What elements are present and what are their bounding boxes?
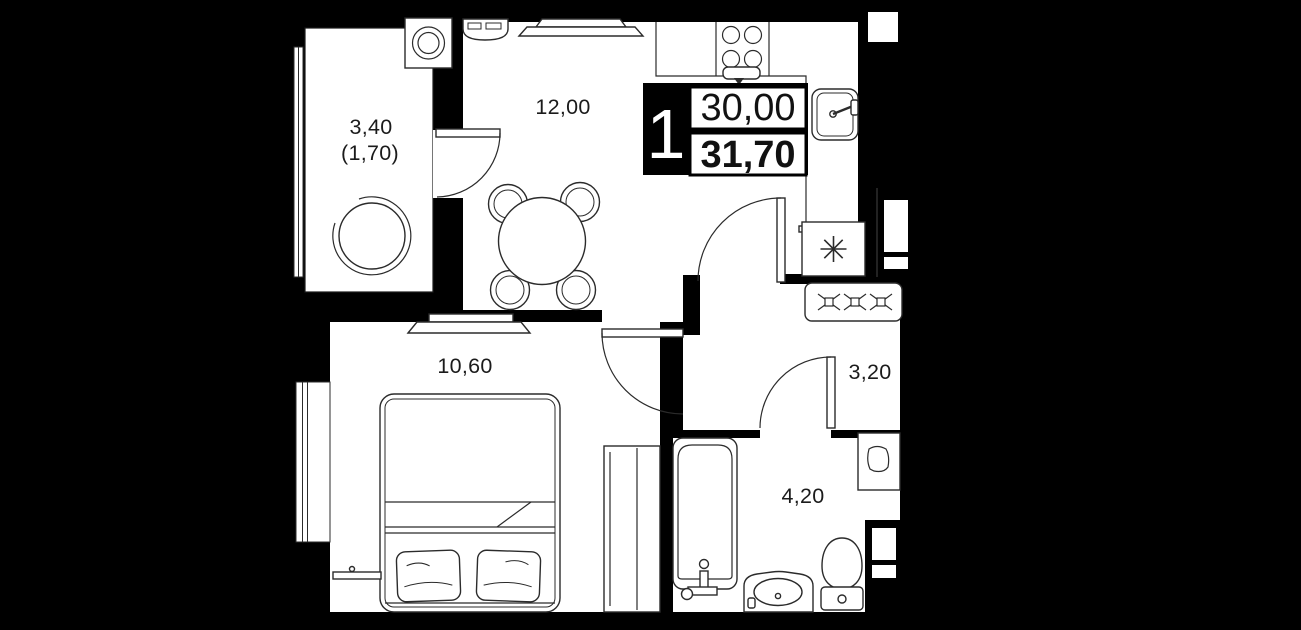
balcony-doorway (433, 130, 463, 198)
kitchen-appliance-icon (463, 19, 508, 40)
bedroom-area-label: 10,60 (437, 354, 492, 378)
kitchen-living-area-label: 12,00 (535, 95, 590, 119)
vent-shaft-icon (805, 283, 902, 321)
washing-machine-icon (405, 18, 452, 68)
floorplan-canvas: 1 30,00 31,70 3,40 (1,70) 12,00 10,60 3,… (0, 0, 1301, 630)
entrance-door-opening (884, 200, 908, 252)
bathroom-area-label: 4,20 (781, 484, 824, 508)
shaft-top-right (868, 12, 898, 42)
fridge-snowflake-icon (799, 222, 865, 276)
shaft-bathroom-lower (872, 565, 896, 578)
balcony-glazing window-icon (294, 47, 303, 277)
toilet-icon (821, 538, 863, 610)
balcony-area-reduced-label: (1,70) (341, 141, 399, 165)
dining-table-icon (499, 198, 586, 285)
water-heater-icon (858, 433, 900, 490)
bathroom-doorway (760, 427, 831, 438)
bed-icon (380, 394, 560, 612)
badge-area-total: 31,70 (700, 134, 795, 176)
snowflake (821, 236, 847, 262)
sink-icon (812, 89, 858, 140)
entrance-door-threshold (884, 257, 908, 269)
wardrobe-icon (604, 446, 660, 612)
pillow-icon (476, 550, 541, 602)
hallway-area-label: 3,20 (848, 360, 891, 384)
pillow-icon (396, 550, 461, 602)
badge-area-primary: 30,00 (700, 87, 795, 129)
area-badge: 1 30,00 31,70 (643, 83, 808, 176)
washbasin-icon (744, 572, 813, 613)
bedroom-doorway (602, 310, 683, 322)
shaft-bathroom-upper (872, 528, 896, 560)
balcony-area-label: 3,40 (349, 115, 392, 139)
wall-stub (683, 275, 700, 335)
bedroom-window window-icon (296, 382, 330, 542)
bathtub-icon (673, 438, 737, 600)
floorplan-svg: 1 30,00 31,70 3,40 (1,70) 12,00 10,60 3,… (0, 0, 1301, 630)
badge-room-count: 1 (647, 95, 686, 173)
